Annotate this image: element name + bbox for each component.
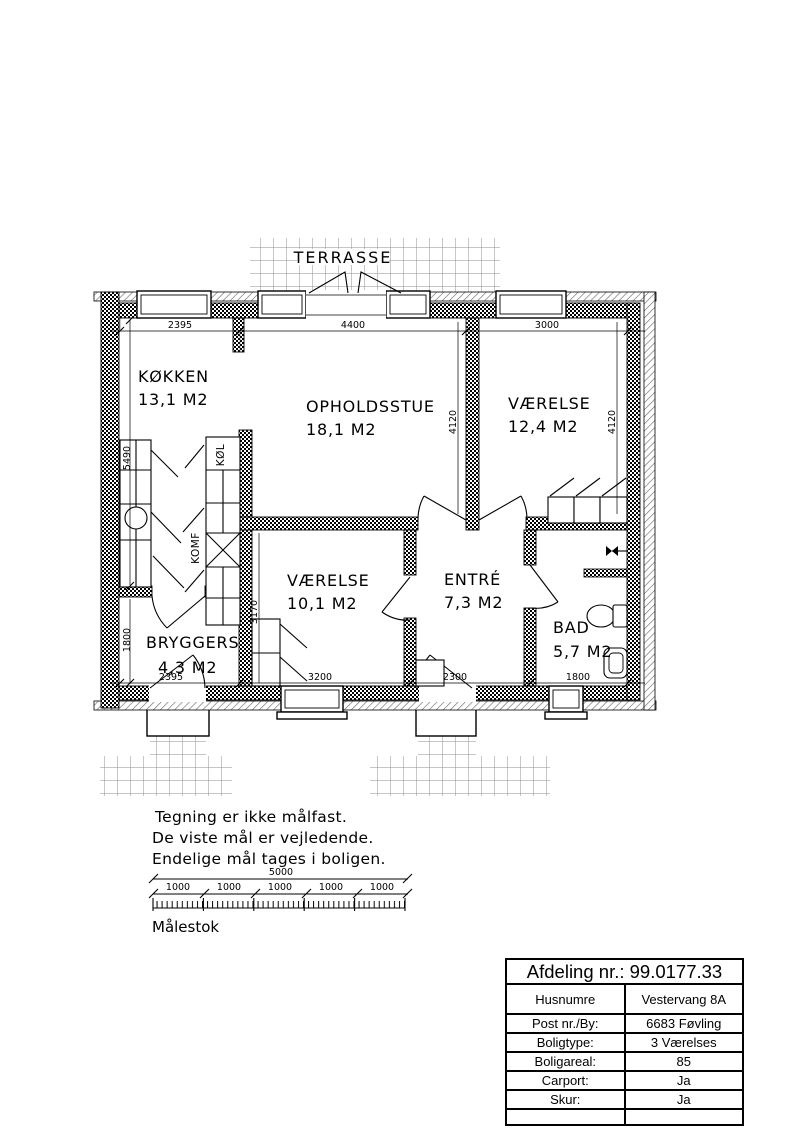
entry-door-opening (419, 685, 476, 702)
patio-right (370, 698, 550, 796)
bedroom1-closet (548, 478, 627, 523)
dim-bedroom1-height: 4120 (607, 410, 618, 434)
scale-total-label: 5000 (269, 867, 293, 878)
stove-label: KOMF (190, 532, 202, 564)
dim-top-kitchen: 2395 (168, 320, 192, 331)
info-label: Boligtype: (506, 1033, 625, 1052)
window (277, 686, 347, 719)
dim-living-height: 4120 (448, 410, 459, 434)
bedroom2-wardrobe (252, 619, 307, 686)
room-area-entry: 7,3 M2 (444, 593, 503, 612)
room-name-kitchen: KØKKEN (138, 367, 209, 386)
dim-bottom-bedroom2: 3200 (308, 672, 332, 683)
wall-left (101, 292, 119, 708)
disclaimer-notes: Tegning er ikke målfast. De viste mål er… (152, 808, 386, 868)
door-utility-kitchen (152, 596, 205, 628)
cabinet-mark (185, 445, 204, 468)
table-row-empty (506, 1109, 743, 1125)
note-line-3: Endelige mål tages i boligen. (152, 850, 386, 868)
floorplan-page: { "colors": {"ink": "#000000", "hatch_gr… (0, 0, 800, 1132)
info-value: 6683 Føvling (625, 1014, 744, 1033)
scale-bar: 5000 1000 1000 1000 1000 1000 Målestok (149, 867, 412, 936)
room-area-living: 18,1 M2 (306, 420, 376, 439)
terrace-label: TERRASSE (293, 248, 393, 267)
cabinet-mark (153, 556, 184, 588)
table-row: Boligareal: 85 (506, 1052, 743, 1071)
info-value: 3 Værelses (625, 1033, 744, 1052)
info-header: Afdeling nr.: 99.0177.33 (506, 959, 743, 984)
info-value: Vestervang 8A (625, 984, 744, 1014)
wall-living-bedroom1 (466, 318, 479, 530)
scale-seg-label: 1000 (217, 882, 241, 893)
floor-plan-drawing: TERRASSE (0, 0, 800, 945)
table-row: Boligtype: 3 Værelses (506, 1033, 743, 1052)
closet-mark (602, 478, 626, 496)
scale-seg-label: 1000 (370, 882, 394, 893)
info-value: Ja (625, 1071, 744, 1090)
room-name-bedroom1: VÆRELSE (508, 394, 591, 413)
room-name-bath: BAD (553, 618, 590, 637)
wall-stub-kitchen (233, 318, 244, 352)
cabinet-mark (151, 512, 181, 543)
room-name-living: OPHOLDSSTUE (306, 397, 435, 416)
dim-left-utility: 1800 (122, 628, 133, 652)
room-area-kitchen: 13,1 M2 (138, 390, 208, 409)
valve-icon (606, 546, 627, 556)
info-label: Carport: (506, 1071, 625, 1090)
door-entry-bedroom1 (479, 496, 527, 520)
wall-entry-bath (524, 608, 536, 686)
window (545, 686, 587, 719)
scale-bar-label: Målestok (152, 918, 219, 936)
wall-bedroom2-entry (404, 618, 416, 686)
window (386, 291, 430, 318)
wall-kitchen-bedroom2 (239, 430, 252, 686)
dim-bottom-bath: 1800 (566, 672, 590, 683)
utility-door-opening (149, 685, 206, 702)
wardrobe-mark (280, 624, 307, 648)
scale-seg-label: 1000 (319, 882, 343, 893)
scale-seg-label: 1000 (268, 882, 292, 893)
info-label: Boligareal: (506, 1052, 625, 1071)
radiator (584, 569, 627, 577)
door-bedroom2-entry (382, 577, 410, 620)
door-entry-living (418, 496, 466, 520)
info-label: Skur: (506, 1090, 625, 1109)
room-area-bedroom2: 10,1 M2 (287, 594, 357, 613)
window (258, 291, 306, 318)
room-area-bath: 5,7 M2 (553, 642, 612, 661)
room-area-bedroom1: 12,4 M2 (508, 417, 578, 436)
wall-kitchen-utility (119, 586, 152, 597)
closet-mark (550, 478, 574, 496)
dim-bedroom2-height: 3170 (249, 600, 260, 624)
note-line-2: De viste mål er vejledende. (152, 829, 374, 847)
info-value: Ja (625, 1090, 744, 1109)
window (137, 291, 211, 318)
wall-bedroom2-entry (404, 530, 416, 575)
dim-left-kitchen: 5490 (122, 446, 133, 470)
scale-seg-label: 1000 (166, 882, 190, 893)
info-header-row: Afdeling nr.: 99.0177.33 (506, 959, 743, 984)
table-row: Husnumre Vestervang 8A (506, 984, 743, 1014)
scale-ruler-ticks (153, 901, 405, 908)
fridge-label: KØL (215, 444, 227, 467)
door-entry-bath (530, 565, 558, 608)
note-line-1: Tegning er ikke målfast. (154, 808, 347, 826)
wall-right (627, 303, 640, 700)
cabinet-mark (151, 450, 178, 477)
table-row: Skur: Ja (506, 1090, 743, 1109)
wall-living-bedroom2 (239, 517, 418, 530)
dim-bottom-entry: 2300 (443, 672, 467, 683)
info-label: Post nr./By: (506, 1014, 625, 1033)
entry-cabinet (416, 660, 444, 686)
wall-entry-bath (524, 530, 536, 565)
window (496, 291, 566, 318)
terrace: TERRASSE (250, 238, 500, 295)
info-table: Afdeling nr.: 99.0177.33 Husnumre Vester… (505, 958, 744, 1126)
table-row: Post nr./By: 6683 Føvling (506, 1014, 743, 1033)
toilet-icon (587, 605, 627, 627)
info-label: Husnumre (506, 984, 625, 1014)
closet-mark (576, 478, 600, 496)
info-value: 85 (625, 1052, 744, 1071)
patio-left (100, 698, 232, 796)
cabinet-mark (183, 508, 204, 532)
dim-top-living: 4400 (341, 320, 365, 331)
wardrobe-mark (280, 657, 307, 681)
wall-right-hatch (644, 292, 655, 710)
room-name-utility: BRYGGERS (146, 633, 239, 652)
dim-top-bedroom1: 3000 (535, 320, 559, 331)
room-name-entry: ENTRÉ (444, 570, 501, 589)
room-name-bedroom2: VÆRELSE (287, 571, 370, 590)
table-row: Carport: Ja (506, 1071, 743, 1090)
cabinet-mark (185, 570, 204, 592)
dim-bottom-utility: 2395 (159, 672, 183, 683)
kitchen-sink-icon (125, 507, 147, 529)
